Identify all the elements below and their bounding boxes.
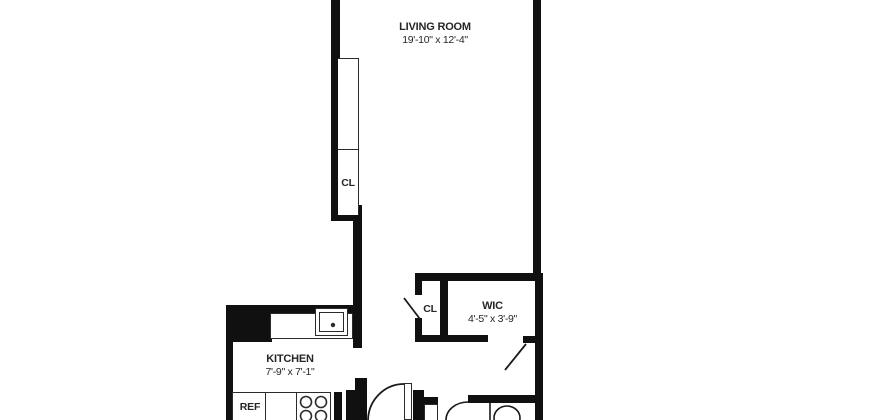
kitchen-cabinet-box xyxy=(265,392,298,420)
floor-plan: LIVING ROOM 19'-10" x 12'-4" KITCHEN 7'-… xyxy=(0,0,870,420)
wic-bottom-right-stub xyxy=(523,336,543,343)
closet-door-line xyxy=(404,298,420,319)
living-closet-label: CL xyxy=(336,177,360,189)
wic-label: WIC 4'-5" x 3'-9" xyxy=(445,300,540,325)
wic-top-wall xyxy=(415,273,543,281)
wic-door-line xyxy=(505,344,526,370)
wic-name: WIC xyxy=(445,300,540,313)
kitchen-sink-basin xyxy=(319,312,344,332)
refrigerator-label: REF xyxy=(234,401,266,413)
bathtub-edge-curve xyxy=(446,402,468,420)
living-room-right-wall xyxy=(533,0,541,281)
kitchen-dimensions: 7'-9" x 7'-1" xyxy=(240,366,340,378)
toilet xyxy=(494,406,520,420)
hall-closet-left-stub-top xyxy=(415,273,422,295)
hall-door-swing-arc xyxy=(368,384,404,420)
fixture-lines-layer xyxy=(0,0,870,420)
stove-box xyxy=(296,392,331,420)
living-room-dimensions: 19'-10" x 12'-4" xyxy=(375,34,495,46)
living-closet-divider xyxy=(338,149,359,150)
wic-dimensions: 4'-5" x 3'-9" xyxy=(445,313,540,325)
living-room-name: LIVING ROOM xyxy=(375,21,495,34)
kitchen-name: KITCHEN xyxy=(240,353,340,366)
bathroom-top-wall xyxy=(468,395,538,403)
living-closet-outline xyxy=(338,58,359,215)
kitchen-label: KITCHEN 7'-9" x 7'-1" xyxy=(240,353,340,378)
bath-wall-arm xyxy=(424,397,438,404)
hall-closet-label: CL xyxy=(419,303,441,315)
hall-door-jamb-block xyxy=(413,390,424,420)
hall-door-leaf xyxy=(404,383,412,420)
wic-bottom-wall xyxy=(415,335,488,342)
kitchen-corner-block xyxy=(227,308,272,342)
bottom-wall-segment-a xyxy=(334,392,342,420)
bath-niche-box xyxy=(424,404,438,420)
living-room-label: LIVING ROOM 19'-10" x 12'-4" xyxy=(375,21,495,46)
kitchen-right-wall xyxy=(353,205,362,348)
bottom-wall-stub xyxy=(355,378,367,392)
bottom-wall-segment-b xyxy=(346,390,367,420)
